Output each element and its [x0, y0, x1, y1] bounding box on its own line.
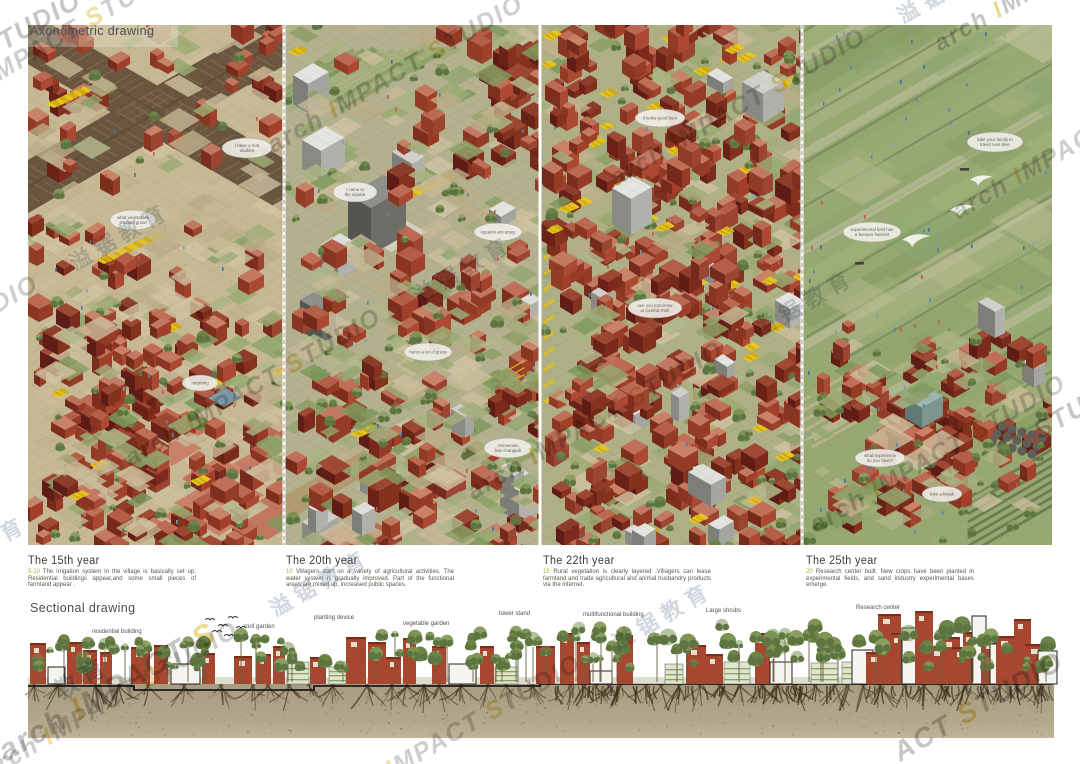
svg-text:student: student — [240, 148, 255, 153]
svg-text:the square: the square — [345, 192, 366, 197]
svg-text:squares are enjoy: squares are enjoy — [481, 230, 517, 235]
svg-text:returning: returning — [191, 381, 209, 386]
svg-text:heres a lot of grass: heres a lot of grass — [409, 350, 447, 355]
svg-text:at Central Park: at Central Park — [640, 308, 670, 313]
svg-text:it looks good here: it looks good here — [643, 116, 678, 121]
